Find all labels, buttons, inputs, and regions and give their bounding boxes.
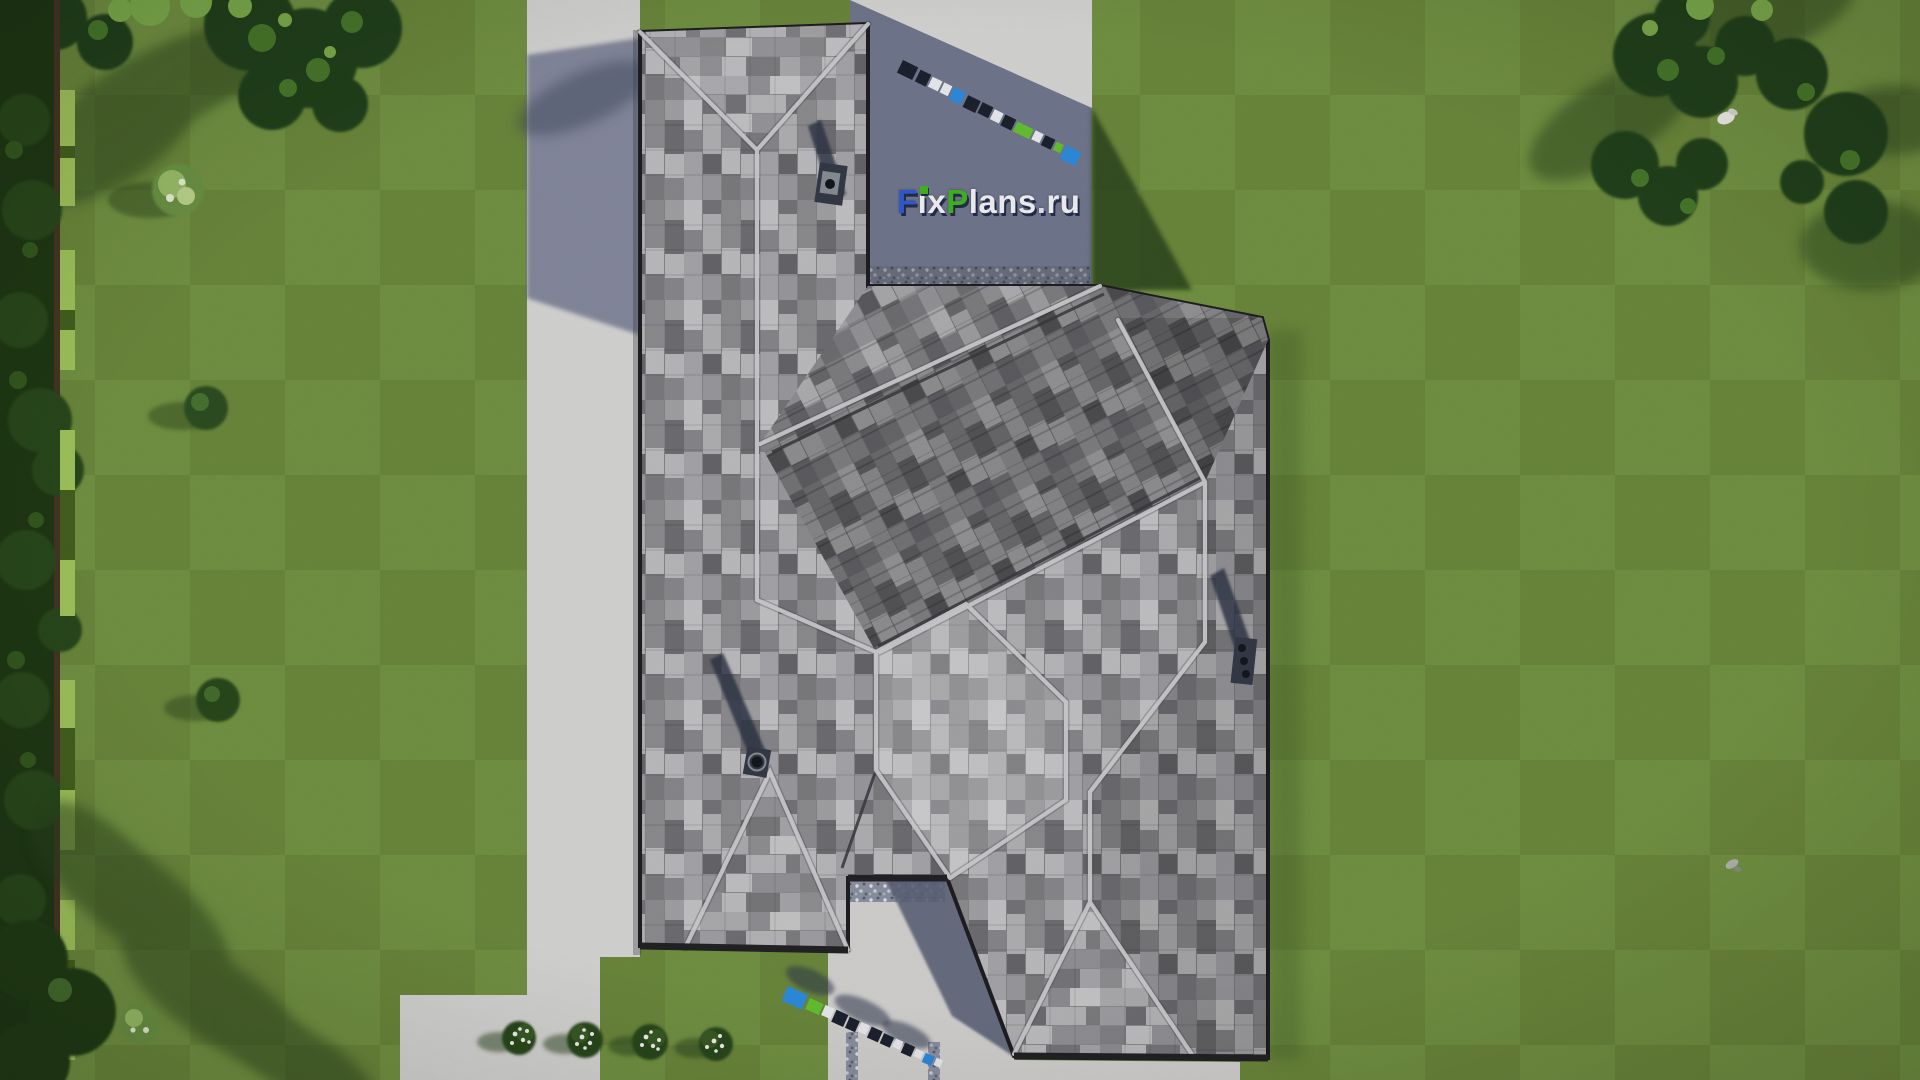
watermark-logo: FixPlans.ru	[897, 183, 1080, 221]
watermark-letter: i	[918, 183, 928, 221]
watermark-letter: u	[1060, 183, 1081, 221]
watermark-letter: .	[1037, 183, 1047, 221]
scene-svg	[0, 0, 1920, 1080]
watermark-letter: l	[969, 183, 979, 221]
watermark-letter: F	[897, 183, 918, 221]
watermark-letter: n	[997, 183, 1018, 221]
vignette	[0, 0, 1920, 1080]
watermark-letter: P	[946, 183, 969, 221]
watermark-letter: a	[978, 183, 997, 221]
aerial-render: FixPlans.ru	[0, 0, 1920, 1080]
watermark-letter: s	[1018, 183, 1037, 221]
watermark-letter: x	[927, 183, 946, 221]
watermark-letter: r	[1046, 183, 1059, 221]
